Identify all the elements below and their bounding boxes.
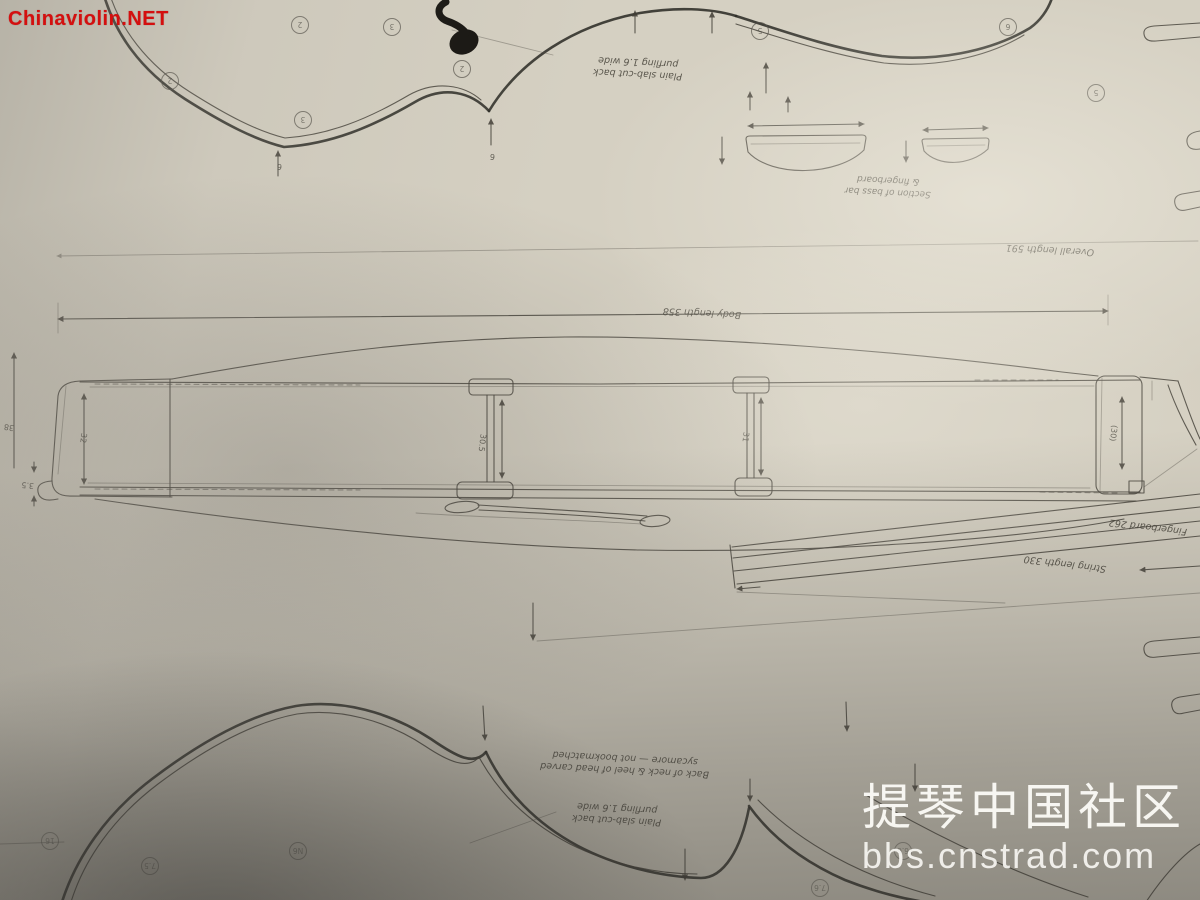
circled-mark: 7.6	[811, 879, 829, 897]
circled-mark: 3	[383, 18, 401, 36]
long-dimension-lines: 38	[3, 241, 1198, 468]
note-bassbar-section: Section of bass bar & fingerboard	[844, 171, 931, 199]
circled-mark: 2	[453, 60, 471, 78]
dim-rib-left: 32	[78, 432, 88, 443]
note-top-back: Plain slab-cut back purfling 1.6 wide	[593, 52, 683, 81]
watermark-cnstrad-chinese: 提琴中国社区	[862, 782, 1186, 836]
dim-left-outer: 38	[3, 422, 14, 432]
circled-mark: 16	[41, 832, 59, 850]
dim-rib-strut2: 31	[741, 431, 751, 442]
top-dimension-arrows: 6 6	[276, 11, 788, 176]
dim-overhang: 3.5	[21, 480, 35, 490]
watermark-chinaviolin: Chinaviolin.NET	[8, 8, 169, 31]
dim-rib-neck: (30)	[1108, 424, 1119, 441]
top-violin-outline	[103, 0, 1052, 147]
circled-mark: 6	[999, 18, 1017, 36]
ink-blot	[439, 2, 483, 59]
circled-mark: 5	[1087, 84, 1105, 102]
watermark-cnstrad: 提琴中国社区 bbs.cnstrad.com	[862, 782, 1186, 875]
circled-mark: 2	[161, 72, 179, 90]
tick-label: 6	[276, 162, 282, 171]
tick-label: 6	[489, 152, 495, 161]
circled-mark: 3	[294, 111, 312, 129]
circled-mark: N6	[289, 842, 307, 860]
circled-mark: 7.5	[141, 857, 159, 875]
photo-of-violin-plan: 6 6 38	[0, 0, 1200, 900]
note-bottom-back: Plain slab-cut back purfling 1.6 wide	[572, 798, 662, 827]
bassbar-cross-sections	[722, 124, 989, 171]
circled-mark: 2	[291, 16, 309, 34]
body-side-view: 3.5 32 30	[21, 337, 1200, 550]
dim-rib-strut1: 30.5	[477, 433, 488, 452]
right-edge-profiles	[1140, 23, 1200, 714]
watermark-cnstrad-url: bbs.cnstrad.com	[862, 836, 1186, 876]
circled-mark: 5	[751, 22, 769, 40]
